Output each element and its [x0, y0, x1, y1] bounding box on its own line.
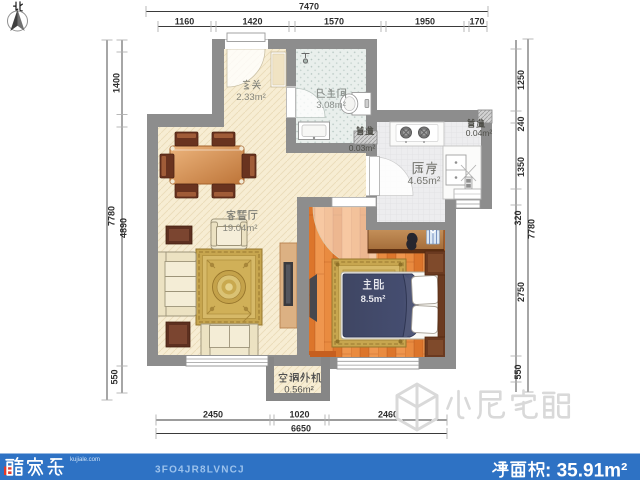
svg-text:3FO4JR8LVNCJ: 3FO4JR8LVNCJ [155, 465, 245, 476]
svg-text:2750: 2750 [516, 282, 526, 302]
svg-text:7780: 7780 [527, 219, 537, 239]
svg-text:: 35.91m²: : 35.91m² [545, 461, 627, 480]
svg-text:1350: 1350 [516, 157, 526, 177]
svg-text:1570: 1570 [324, 17, 344, 27]
svg-text:0.03m²: 0.03m² [349, 143, 376, 153]
svg-text:8.5m²: 8.5m² [361, 294, 386, 305]
svg-text:kujiale.com: kujiale.com [70, 457, 100, 463]
svg-text:1400: 1400 [112, 73, 122, 93]
svg-text:4.65m²: 4.65m² [408, 175, 441, 187]
svg-text:2450: 2450 [203, 410, 223, 420]
svg-text:1420: 1420 [242, 17, 262, 27]
svg-text:3.08m²: 3.08m² [316, 100, 346, 111]
svg-text:2460: 2460 [378, 410, 398, 420]
svg-text:19.04m²: 19.04m² [223, 223, 258, 234]
svg-text:1160: 1160 [175, 17, 195, 27]
svg-text:4890: 4890 [119, 218, 129, 238]
svg-text:0.04m²: 0.04m² [466, 128, 493, 138]
svg-text:550: 550 [513, 364, 523, 379]
svg-text:2.33m²: 2.33m² [236, 92, 266, 103]
svg-text:240: 240 [516, 116, 526, 131]
svg-text:1020: 1020 [289, 410, 309, 420]
svg-text:0.56m²: 0.56m² [284, 385, 314, 396]
svg-text:170: 170 [469, 17, 484, 27]
svg-text:7780: 7780 [107, 206, 117, 226]
svg-text:1250: 1250 [516, 70, 526, 90]
svg-text:6650: 6650 [291, 424, 311, 434]
svg-text:550: 550 [110, 369, 120, 384]
svg-text:1950: 1950 [415, 17, 435, 27]
svg-text:320: 320 [513, 210, 523, 225]
svg-text:7470: 7470 [299, 2, 319, 12]
